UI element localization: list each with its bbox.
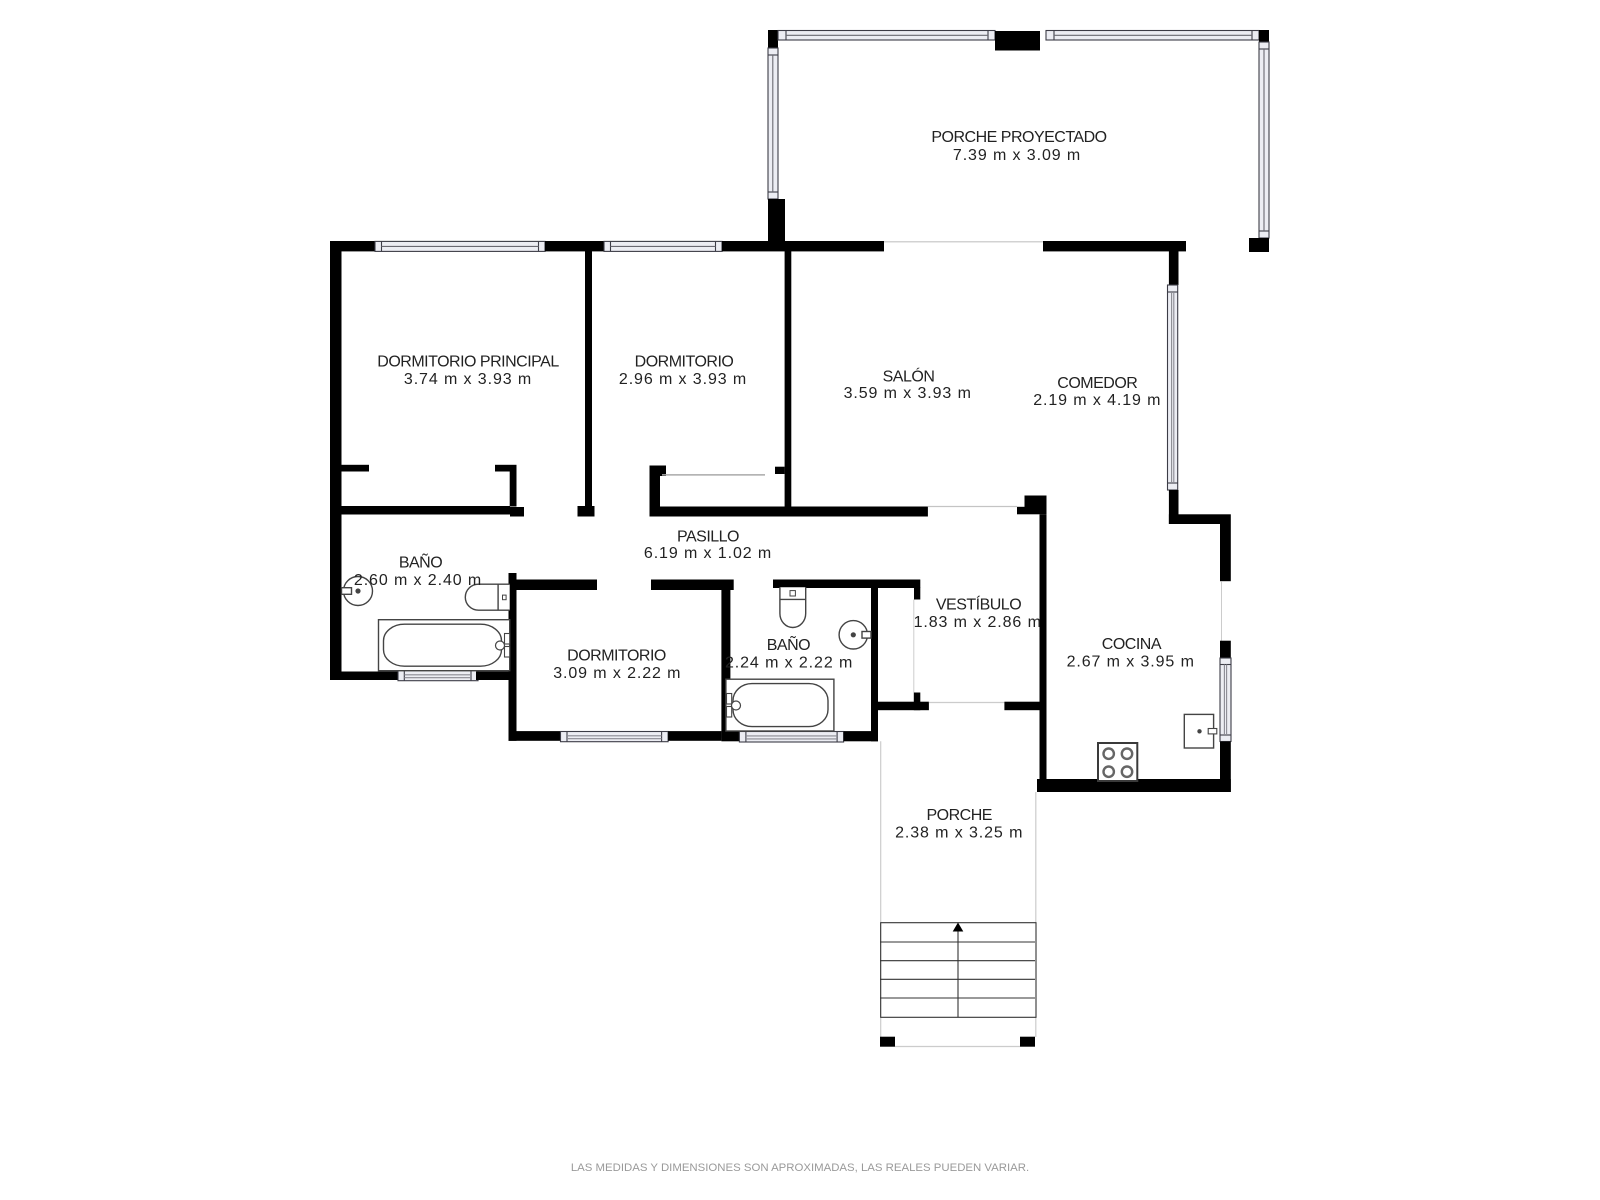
svg-text:DORMITORIO: DORMITORIO bbox=[567, 648, 666, 665]
svg-text:2.96 m x 3.93 m: 2.96 m x 3.93 m bbox=[619, 371, 747, 388]
svg-text:COMEDOR: COMEDOR bbox=[1057, 375, 1137, 392]
svg-text:2.38 m x 3.25 m: 2.38 m x 3.25 m bbox=[895, 824, 1023, 841]
svg-text:SALÓN: SALÓN bbox=[883, 366, 935, 385]
svg-text:2.24 m x 2.22 m: 2.24 m x 2.22 m bbox=[725, 654, 853, 671]
svg-text:PASILLO: PASILLO bbox=[677, 529, 739, 546]
svg-text:DORMITORIO: DORMITORIO bbox=[635, 354, 734, 371]
svg-text:2.67 m x 3.95 m: 2.67 m x 3.95 m bbox=[1067, 654, 1195, 671]
svg-text:2.60 m x 2.40 m: 2.60 m x 2.40 m bbox=[354, 572, 482, 589]
svg-text:COCINA: COCINA bbox=[1102, 636, 1162, 653]
svg-text:PORCHE PROYECTADO: PORCHE PROYECTADO bbox=[931, 129, 1106, 146]
svg-text:1.83 m x 2.86 m: 1.83 m x 2.86 m bbox=[914, 614, 1042, 631]
svg-text:LAS MEDIDAS Y DIMENSIONES SON: LAS MEDIDAS Y DIMENSIONES SON APROXIMADA… bbox=[571, 1162, 1029, 1174]
svg-text:3.09 m x 2.22 m: 3.09 m x 2.22 m bbox=[553, 665, 681, 682]
svg-text:BAÑO: BAÑO bbox=[399, 552, 442, 572]
svg-text:PORCHE: PORCHE bbox=[926, 807, 991, 824]
svg-text:2.19 m x 4.19 m: 2.19 m x 4.19 m bbox=[1033, 392, 1161, 409]
svg-text:VESTÍBULO: VESTÍBULO bbox=[936, 595, 1021, 614]
svg-text:3.74 m x 3.93 m: 3.74 m x 3.93 m bbox=[404, 371, 532, 388]
svg-text:7.39 m x 3.09 m: 7.39 m x 3.09 m bbox=[953, 147, 1081, 164]
svg-text:3.59 m x 3.93 m: 3.59 m x 3.93 m bbox=[844, 385, 972, 402]
svg-text:DORMITORIO PRINCIPAL: DORMITORIO PRINCIPAL bbox=[377, 354, 559, 371]
svg-text:6.19 m x 1.02 m: 6.19 m x 1.02 m bbox=[644, 545, 772, 562]
svg-text:BAÑO: BAÑO bbox=[767, 634, 810, 654]
